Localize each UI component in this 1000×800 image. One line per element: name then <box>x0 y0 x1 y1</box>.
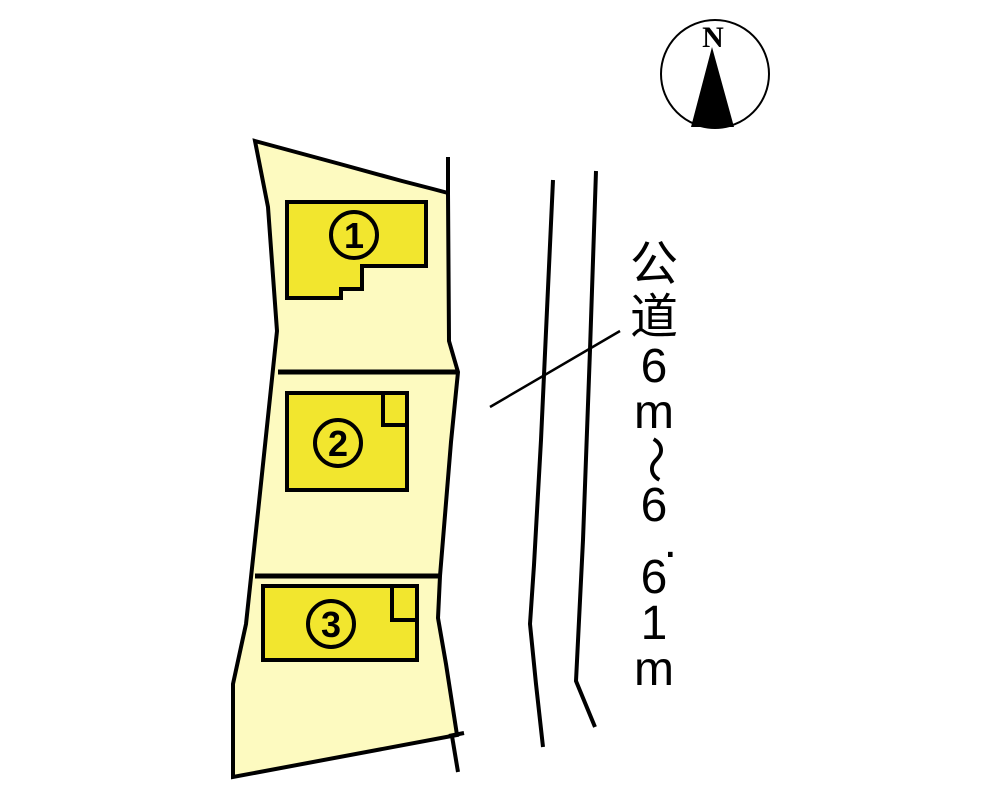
road-edge-left <box>530 180 553 747</box>
road-label-char: m <box>634 390 674 436</box>
road-label-char: 道 <box>630 291 678 344</box>
road-edge-right <box>576 171 596 727</box>
compass-north-label: N <box>702 21 724 54</box>
road-label-char: 6 <box>641 344 668 390</box>
road-label-char: 1 <box>641 601 668 647</box>
road-label-char: m <box>634 647 674 693</box>
road-label-char: 公 <box>630 238 678 291</box>
compass: N <box>661 20 769 128</box>
road-label-char: ～ <box>630 435 677 483</box>
road-label-leader-line <box>490 331 620 407</box>
road-label: 公道6m～6.61m <box>625 238 683 693</box>
site-plan: 1 2 3 N 公道6m～6.61m <box>0 0 1000 800</box>
road-label-char: 6 <box>641 555 668 601</box>
lot-1-number: 1 <box>344 215 364 256</box>
compass-needle-icon <box>691 47 734 127</box>
site-plan-drawing: 1 2 3 N <box>0 0 1000 800</box>
lot-2-number: 2 <box>328 423 348 464</box>
boundary-overshoot-bottom-right <box>452 736 458 772</box>
lot-3-number: 3 <box>321 604 341 645</box>
